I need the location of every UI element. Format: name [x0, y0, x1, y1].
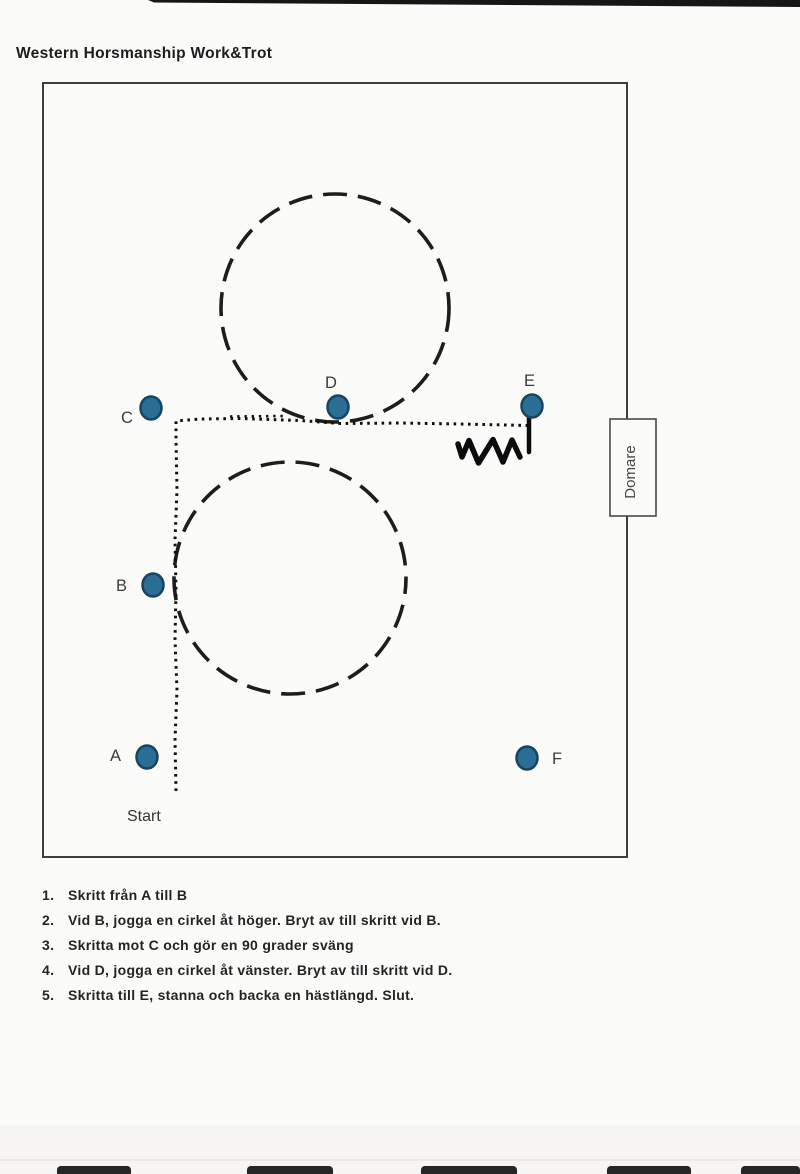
svg-text:C: C	[121, 409, 133, 427]
svg-text:Start: Start	[127, 808, 161, 825]
svg-text:D: D	[325, 374, 337, 392]
svg-text:B: B	[116, 577, 127, 595]
svg-text:A: A	[110, 747, 121, 765]
svg-text:E: E	[524, 372, 535, 390]
svg-text:F: F	[552, 750, 562, 768]
svg-text:Domare: Domare	[622, 445, 639, 498]
